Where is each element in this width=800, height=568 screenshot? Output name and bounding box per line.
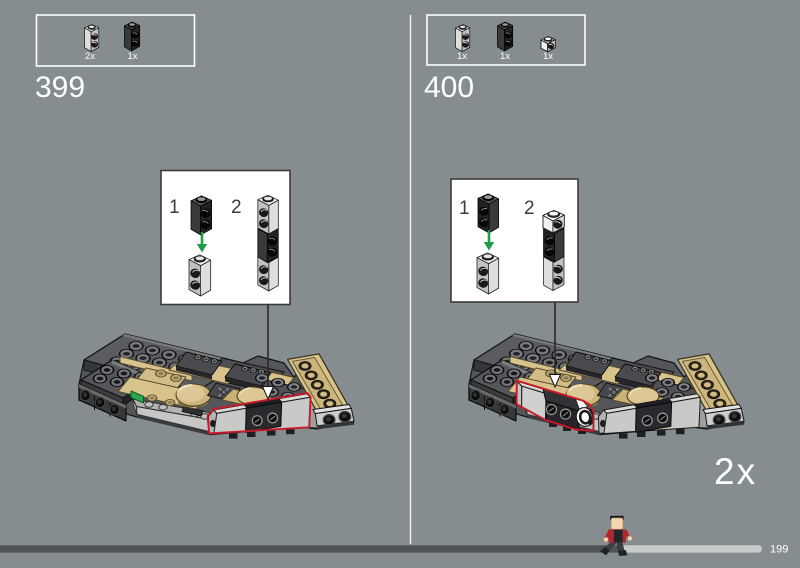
- svg-text:199: 199: [770, 544, 788, 556]
- svg-text:1x: 1x: [457, 51, 467, 62]
- svg-text:1x: 1x: [543, 51, 553, 62]
- svg-text:1: 1: [169, 197, 180, 218]
- svg-text:1x: 1x: [127, 51, 137, 62]
- svg-text:2: 2: [231, 197, 242, 218]
- svg-text:1x: 1x: [500, 51, 510, 62]
- svg-text:2x: 2x: [85, 51, 95, 62]
- svg-text:1: 1: [459, 198, 470, 219]
- svg-text:2: 2: [524, 198, 535, 219]
